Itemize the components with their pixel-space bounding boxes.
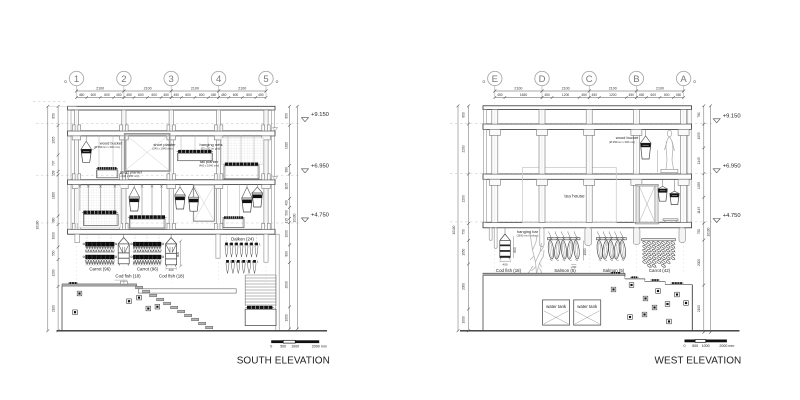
svg-text:450: 450 bbox=[629, 93, 635, 97]
svg-text:2000: 2000 bbox=[697, 259, 701, 266]
svg-text:1000: 1000 bbox=[284, 314, 288, 321]
svg-text:450: 450 bbox=[592, 93, 598, 97]
svg-text:(1500 mm bamboo): (1500 mm bamboo) bbox=[517, 234, 539, 237]
svg-text:+9.150: +9.150 bbox=[311, 112, 329, 118]
svg-text:500: 500 bbox=[284, 210, 288, 216]
svg-text:850: 850 bbox=[51, 113, 55, 119]
svg-text:+6.950: +6.950 bbox=[723, 163, 741, 169]
svg-text:1145: 1145 bbox=[697, 207, 701, 214]
svg-text:2100: 2100 bbox=[514, 86, 522, 90]
svg-text:450: 450 bbox=[544, 93, 550, 97]
svg-text:3: 3 bbox=[169, 74, 174, 85]
svg-text:750: 750 bbox=[697, 229, 701, 235]
svg-text:2100: 2100 bbox=[96, 86, 104, 90]
svg-text:1650: 1650 bbox=[520, 93, 528, 97]
svg-text:2200: 2200 bbox=[462, 145, 466, 152]
svg-text:450: 450 bbox=[258, 93, 264, 97]
svg-text:2000 mm: 2000 mm bbox=[312, 345, 327, 349]
svg-text:2100: 2100 bbox=[562, 86, 570, 90]
svg-text:1055: 1055 bbox=[697, 182, 701, 189]
svg-text:2100: 2100 bbox=[191, 86, 199, 90]
svg-text:(52 x 52 on grid): (52 x 52 on grid) bbox=[201, 146, 221, 150]
svg-text:+6.950: +6.950 bbox=[311, 163, 329, 169]
svg-text:Carrot (96): Carrot (96) bbox=[137, 267, 159, 272]
svg-text:10100: 10100 bbox=[292, 213, 296, 222]
svg-text:+4.750: +4.750 bbox=[723, 213, 741, 219]
svg-text:2100: 2100 bbox=[144, 86, 152, 90]
svg-text:1050: 1050 bbox=[462, 248, 466, 255]
svg-text:400: 400 bbox=[284, 200, 288, 206]
svg-text:(240 x 950 mm): (240 x 950 mm) bbox=[121, 174, 140, 178]
svg-text:600: 600 bbox=[199, 93, 205, 97]
svg-text:Cod fish (18): Cod fish (18) bbox=[496, 268, 522, 273]
svg-text:1305: 1305 bbox=[51, 136, 55, 143]
svg-text:10100: 10100 bbox=[707, 227, 711, 236]
svg-text:2200: 2200 bbox=[462, 195, 466, 202]
svg-text:D: D bbox=[539, 74, 546, 85]
svg-text:SOUTH ELEVATION: SOUTH ELEVATION bbox=[237, 356, 330, 367]
svg-text:1000: 1000 bbox=[291, 345, 299, 349]
svg-text:195: 195 bbox=[284, 218, 288, 224]
svg-text:short planter: short planter bbox=[120, 170, 143, 175]
svg-text:1820: 1820 bbox=[284, 142, 288, 149]
svg-text:500: 500 bbox=[280, 345, 286, 349]
svg-text:2100: 2100 bbox=[609, 86, 617, 90]
svg-text:WEST ELEVATION: WEST ELEVATION bbox=[654, 356, 741, 367]
svg-text:2100: 2100 bbox=[51, 305, 55, 312]
svg-text:800: 800 bbox=[462, 112, 466, 118]
svg-text:2000: 2000 bbox=[284, 281, 288, 288]
svg-text:380: 380 bbox=[51, 217, 55, 223]
svg-text:600: 600 bbox=[152, 93, 158, 97]
svg-text:2100: 2100 bbox=[697, 305, 701, 312]
svg-text:800: 800 bbox=[284, 251, 288, 257]
svg-text:A: A bbox=[680, 74, 687, 85]
svg-text:water tank: water tank bbox=[546, 304, 567, 309]
svg-text:2100: 2100 bbox=[238, 86, 246, 90]
svg-text:5: 5 bbox=[263, 74, 268, 85]
svg-text:600: 600 bbox=[246, 93, 252, 97]
svg-text:600: 600 bbox=[138, 93, 144, 97]
svg-text:450: 450 bbox=[126, 93, 132, 97]
svg-text:450: 450 bbox=[639, 93, 645, 97]
svg-text:158: 158 bbox=[51, 170, 55, 176]
svg-text:1000: 1000 bbox=[51, 232, 55, 239]
svg-text:1000: 1000 bbox=[284, 230, 288, 237]
svg-text:1: 1 bbox=[74, 74, 79, 85]
svg-text:2000 mm: 2000 mm bbox=[719, 344, 734, 348]
svg-text:2000: 2000 bbox=[462, 283, 466, 290]
svg-text:(460 x 1940 mm): (460 x 1940 mm) bbox=[199, 163, 219, 167]
svg-text:600: 600 bbox=[651, 93, 657, 97]
svg-text:850: 850 bbox=[284, 113, 288, 119]
svg-text:200: 200 bbox=[571, 265, 576, 269]
svg-text:B: B bbox=[633, 74, 639, 85]
svg-text:600: 600 bbox=[664, 93, 670, 97]
svg-text:450: 450 bbox=[211, 93, 217, 97]
svg-text:short planter: short planter bbox=[153, 142, 176, 147]
svg-text:400: 400 bbox=[502, 263, 507, 267]
svg-text:Salmon (5): Salmon (5) bbox=[554, 268, 576, 273]
svg-text:0: 0 bbox=[684, 344, 686, 348]
svg-text:450: 450 bbox=[676, 93, 682, 97]
svg-text:1200: 1200 bbox=[562, 93, 570, 97]
svg-text:750: 750 bbox=[462, 229, 466, 235]
svg-text:400: 400 bbox=[168, 268, 173, 272]
svg-text:C: C bbox=[586, 74, 593, 85]
svg-text:1145: 1145 bbox=[697, 157, 701, 164]
svg-text:737: 737 bbox=[51, 160, 55, 166]
svg-text:1820: 1820 bbox=[51, 192, 55, 199]
svg-text:600: 600 bbox=[104, 93, 110, 97]
svg-text:1055: 1055 bbox=[697, 132, 701, 139]
svg-text:Cod fish (18): Cod fish (18) bbox=[115, 273, 141, 278]
svg-text:E: E bbox=[492, 74, 498, 85]
svg-text:450: 450 bbox=[497, 93, 503, 97]
svg-text:800: 800 bbox=[176, 252, 180, 258]
svg-text:Cod fish (18): Cod fish (18) bbox=[159, 273, 185, 278]
svg-text:Carrot (96): Carrot (96) bbox=[89, 267, 111, 272]
svg-text:450: 450 bbox=[116, 93, 122, 97]
svg-text:tall planter: tall planter bbox=[200, 159, 219, 164]
svg-text:600: 600 bbox=[233, 93, 239, 97]
svg-text:2100: 2100 bbox=[656, 86, 664, 90]
svg-text:600: 600 bbox=[185, 93, 191, 97]
svg-text:1000: 1000 bbox=[462, 316, 466, 323]
svg-text:Daikon (24): Daikon (24) bbox=[231, 236, 254, 241]
svg-text:450: 450 bbox=[174, 93, 180, 97]
svg-text:10100: 10100 bbox=[36, 220, 40, 229]
svg-text:(240 x 1940 mm): (240 x 1940 mm) bbox=[152, 147, 172, 151]
svg-text:(Ø 350mm x 300 mm): (Ø 350mm x 300 mm) bbox=[94, 145, 120, 149]
svg-text:550: 550 bbox=[51, 250, 55, 256]
svg-text:1000: 1000 bbox=[702, 344, 710, 348]
svg-text:4: 4 bbox=[216, 74, 221, 85]
svg-text:600: 600 bbox=[91, 93, 97, 97]
svg-text:water tank: water tank bbox=[577, 304, 598, 309]
svg-text:781: 781 bbox=[697, 112, 701, 118]
svg-text:1200: 1200 bbox=[51, 269, 55, 276]
svg-text:10100: 10100 bbox=[452, 225, 456, 234]
svg-text:0: 0 bbox=[270, 345, 272, 349]
svg-text:800: 800 bbox=[513, 247, 517, 253]
svg-text:wood bucket: wood bucket bbox=[100, 140, 123, 145]
svg-text:450: 450 bbox=[221, 93, 227, 97]
svg-text:(Ø 350mm x 300 mm): (Ø 350mm x 300 mm) bbox=[609, 140, 635, 144]
svg-text:+9.150: +9.150 bbox=[723, 113, 741, 119]
svg-text:450: 450 bbox=[581, 93, 587, 97]
svg-text:hanging bar: hanging bar bbox=[517, 229, 539, 234]
svg-text:2: 2 bbox=[121, 74, 126, 85]
svg-text:wood bucket: wood bucket bbox=[616, 135, 639, 140]
svg-text:tea house: tea house bbox=[564, 194, 585, 199]
svg-text:hanging nets: hanging nets bbox=[200, 142, 223, 147]
svg-text:450: 450 bbox=[79, 93, 85, 97]
svg-text:1200: 1200 bbox=[609, 93, 617, 97]
svg-text:500: 500 bbox=[692, 344, 698, 348]
svg-text:1105: 1105 bbox=[284, 183, 288, 190]
svg-text:380: 380 bbox=[284, 167, 288, 173]
svg-text:1000: 1000 bbox=[583, 248, 587, 255]
svg-text:+4.750: +4.750 bbox=[311, 212, 329, 218]
svg-text:450: 450 bbox=[163, 93, 169, 97]
svg-text:Carrot (42): Carrot (42) bbox=[649, 268, 671, 273]
